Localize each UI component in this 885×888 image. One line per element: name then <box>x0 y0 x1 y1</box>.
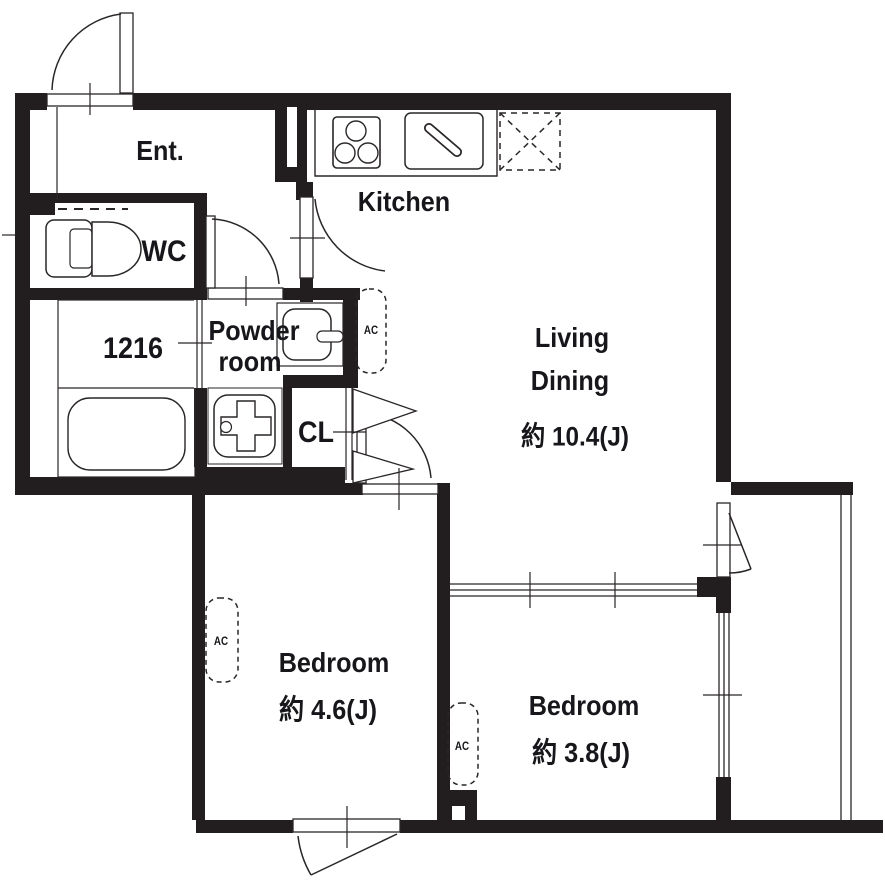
entry-door-leaf <box>120 13 133 93</box>
stove-icon <box>333 117 380 168</box>
room-label-dining: Dining <box>531 367 609 395</box>
closet-bifold-bottom <box>353 451 413 483</box>
wall-slide-chunk <box>697 577 716 597</box>
wall-east-mid <box>716 577 731 613</box>
wall-bottom-b <box>400 820 883 833</box>
room-area-living-dining: 約 10.4(J) <box>521 424 629 451</box>
kitchen-fixtures <box>315 110 560 176</box>
wall-balcony-stub <box>731 482 853 495</box>
powder-door-arc <box>212 219 279 284</box>
bath-door-gap <box>194 300 207 388</box>
stove-burner <box>335 143 355 163</box>
wall-bath-top <box>15 288 194 300</box>
bathtub <box>68 398 185 470</box>
ac-label-bedroom38: AC <box>455 740 469 752</box>
balcony-door-leaf <box>717 503 730 577</box>
stove-burner <box>346 121 366 141</box>
wall-bedrooms-partition <box>437 495 450 820</box>
wall-top-left <box>15 93 47 110</box>
pillar-notch <box>452 806 465 820</box>
wall-top <box>133 93 731 110</box>
wall-east-lower <box>716 777 731 820</box>
room-label-closet: CL <box>298 418 334 448</box>
balcony-door-leaf-line <box>729 513 751 569</box>
room-area-bedroom38: 約 3.8(J) <box>532 739 630 767</box>
room-label-entrance: Ent. <box>136 137 184 165</box>
bedroom46-outer-door-leaf-line <box>311 834 397 875</box>
room-label-wc: WC <box>142 237 187 267</box>
room-label-kitchen: Kitchen <box>358 188 450 216</box>
washbasin-drain <box>221 422 232 433</box>
refrigerator-cross <box>500 113 560 170</box>
wall-wc-top-chunk <box>25 193 55 215</box>
wall-wc-right <box>194 193 207 300</box>
balcony-rail <box>841 495 851 820</box>
room-label-bathroom-size: 1216 <box>103 334 163 364</box>
bedroom46-door-sill <box>362 484 438 494</box>
wall-bedroom46-top-a <box>192 483 363 495</box>
wall-closet-top <box>283 375 343 388</box>
room-label-living: Living <box>535 324 609 352</box>
wall-bottom-a <box>196 820 293 833</box>
living-bedroom38-sliding-partition <box>450 584 697 596</box>
wall-bedroom46-top-b <box>437 483 450 495</box>
stove-burner <box>358 143 378 163</box>
room-area-bedroom46: 約 4.6(J) <box>279 696 377 724</box>
room-label-bedroom46: Bedroom <box>279 649 390 677</box>
wall-powder-bottom <box>195 467 345 483</box>
refrigerator-space-icon <box>500 113 560 170</box>
balcony-door-arc <box>729 569 751 573</box>
washbasin-icon <box>208 388 282 464</box>
sink-faucet <box>429 128 457 152</box>
wall-bath-bottom <box>15 477 207 495</box>
washer-handle <box>317 331 343 342</box>
bedroom46-outer-door-arc <box>298 836 311 875</box>
wall-bath-right-lower <box>194 388 207 467</box>
wall-closet-left <box>283 388 292 480</box>
closet-bifold-top <box>353 389 416 433</box>
wall-east-upper <box>716 110 731 482</box>
toilet-icon <box>46 220 141 277</box>
toilet-tank-lid <box>70 229 92 268</box>
powder-door-leaf <box>206 216 215 288</box>
floor-plan: Ent. WC 1216 Powder room Kitchen Living … <box>0 0 885 888</box>
wall-bedroom46-left <box>192 495 205 820</box>
ac-label-living: AC <box>364 324 378 336</box>
closet-door-lines <box>346 388 352 480</box>
toilet-bowl <box>92 222 141 276</box>
windows <box>450 495 851 820</box>
ac-label-bedroom46: AC <box>214 635 228 647</box>
wall-slot <box>287 107 297 167</box>
floor-plan-drawing <box>0 0 885 888</box>
room-label-bedroom38: Bedroom <box>529 692 640 720</box>
entry-door-arc <box>52 14 121 90</box>
room-label-powder-line2: room <box>219 348 282 376</box>
room-label-powder-line1: Powder <box>208 317 299 345</box>
